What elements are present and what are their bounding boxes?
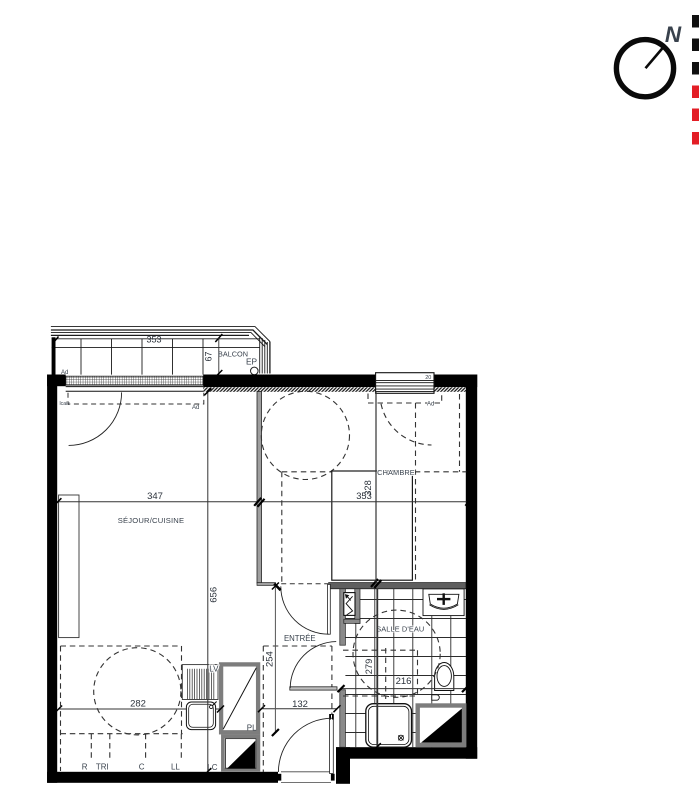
svg-text:LL: LL [171, 763, 180, 772]
svg-text:20: 20 [425, 375, 431, 381]
svg-text:132: 132 [292, 699, 308, 710]
svg-text:LV: LV [209, 664, 219, 673]
svg-text:67: 67 [204, 351, 214, 361]
svg-text:279: 279 [364, 659, 374, 675]
svg-text:Ad: Ad [61, 370, 68, 376]
svg-text:353: 353 [146, 335, 161, 345]
svg-text:SÉJOUR/CUISINE: SÉJOUR/CUISINE [118, 516, 185, 525]
svg-text:C: C [139, 763, 145, 772]
svg-text:lcais: lcais [60, 401, 71, 407]
svg-text:N: N [665, 22, 682, 47]
svg-text:656: 656 [208, 587, 219, 603]
svg-text:CHAMBRE: CHAMBRE [377, 468, 415, 477]
svg-text:SALLE D'EAU: SALLE D'EAU [376, 625, 424, 634]
svg-text:328: 328 [363, 480, 373, 496]
svg-text:ENTRÉE: ENTRÉE [284, 634, 316, 643]
svg-text:TRI: TRI [96, 763, 109, 772]
svg-text:282: 282 [130, 698, 146, 709]
svg-text:216: 216 [396, 676, 412, 687]
svg-text:EP: EP [246, 356, 258, 366]
svg-text:Ad: Ad [192, 405, 199, 411]
svg-text:PL: PL [247, 723, 257, 732]
svg-text:R: R [82, 763, 88, 772]
svg-text:BALCON: BALCON [218, 350, 248, 359]
svg-text:254: 254 [264, 651, 275, 667]
svg-text:Ad: Ad [427, 402, 434, 408]
svg-text:347: 347 [147, 491, 163, 502]
